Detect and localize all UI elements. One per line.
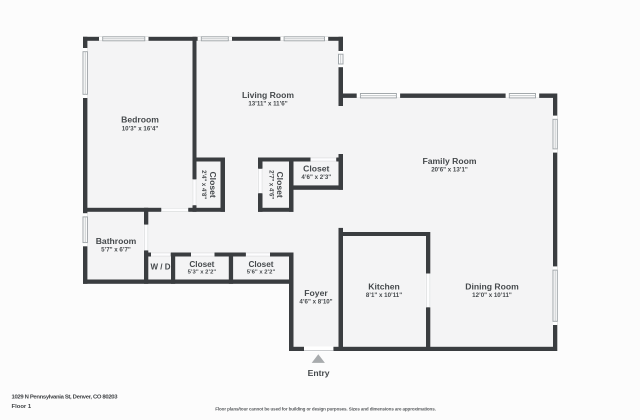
svg-text:W / D: W / D (151, 263, 171, 272)
svg-text:Floor plans/tour cannot be use: Floor plans/tour cannot be used for buil… (215, 406, 436, 411)
svg-text:Closet: Closet (275, 171, 285, 197)
svg-text:10’3" x 16’4": 10’3" x 16’4" (122, 125, 159, 132)
svg-text:5’6" x 2’2": 5’6" x 2’2" (247, 270, 276, 276)
svg-text:Kitchen: Kitchen (368, 282, 400, 292)
svg-text:1029 N Pennsylvania St, Denver: 1029 N Pennsylvania St, Denver, CO 80203 (12, 395, 119, 401)
svg-text:Foyer: Foyer (304, 288, 328, 298)
svg-text:5’7" x 6’7": 5’7" x 6’7" (101, 247, 131, 254)
svg-text:Living Room: Living Room (242, 90, 294, 100)
svg-text:Floor 1: Floor 1 (12, 404, 32, 410)
svg-text:5’3" x 2’2": 5’3" x 2’2" (188, 270, 217, 276)
svg-text:4’6" x 2’3": 4’6" x 2’3" (301, 174, 331, 181)
svg-text:Closet: Closet (303, 164, 329, 174)
svg-text:8’1" x 10’11": 8’1" x 10’11" (366, 292, 402, 299)
svg-text:4’6" x 8’10": 4’6" x 8’10" (299, 299, 332, 306)
svg-text:20’6" x 13’1": 20’6" x 13’1" (431, 166, 468, 173)
svg-text:Closet: Closet (248, 260, 273, 269)
svg-text:Entry: Entry (308, 368, 330, 378)
svg-text:Dining Room: Dining Room (465, 282, 519, 292)
svg-text:Closet: Closet (189, 260, 214, 269)
svg-text:13’11" x 11’6": 13’11" x 11’6" (248, 101, 287, 108)
svg-text:Bedroom: Bedroom (121, 115, 159, 125)
svg-text:12’0" x 10’11": 12’0" x 10’11" (472, 292, 512, 299)
svg-text:Closet: Closet (208, 171, 218, 197)
svg-text:2’4" x 4’8": 2’4" x 4’8" (200, 170, 206, 199)
svg-text:Family Room: Family Room (423, 156, 477, 166)
svg-text:Bathroom: Bathroom (96, 236, 137, 246)
svg-text:2’7" x 4’6": 2’7" x 4’6" (267, 170, 273, 199)
